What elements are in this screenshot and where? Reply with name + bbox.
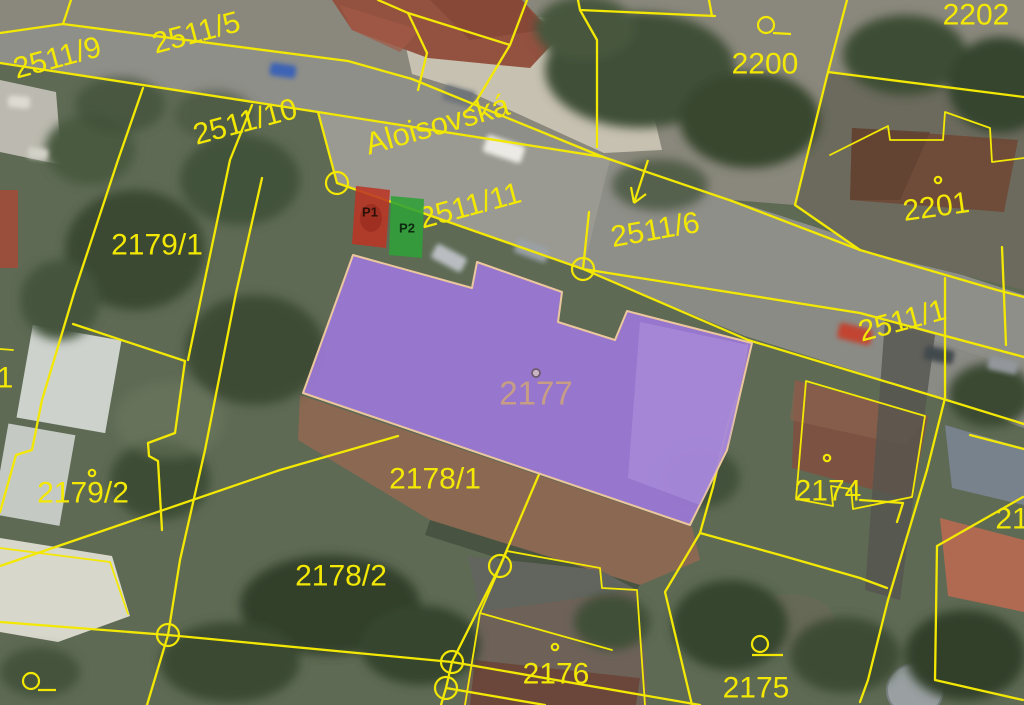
parcel-label-2176: 2176	[523, 658, 590, 691]
parcel-label-2202: 2202	[943, 0, 1010, 32]
parcel-label-2174: 2174	[795, 475, 862, 508]
parcel-label-2179-1: 2179/1	[111, 229, 203, 262]
parcel-label-2177: 2177	[499, 375, 572, 412]
cadastral-map: 2177 2511/9 2511/5 2511/10 Aloisovská 25…	[0, 0, 1024, 705]
edge-tick-left	[0, 349, 13, 350]
parcel-label-2178-1: 2178/1	[389, 463, 481, 496]
parcel-label-partial-right: 21	[995, 503, 1024, 536]
parcel-label-2179-2: 2179/2	[37, 477, 129, 510]
white-roof-building	[17, 325, 122, 433]
parcel-label-partial-left: 1	[0, 362, 13, 395]
parcel-label-2175: 2175	[723, 672, 790, 705]
marker-p1: P1	[352, 186, 390, 248]
parcel-label-2200: 2200	[732, 48, 799, 81]
marker-p2: P2	[389, 196, 424, 258]
marker-p1-label: P1	[362, 205, 378, 220]
marker-p2-label: P2	[399, 221, 415, 236]
map-canvas: 2177 2511/9 2511/5 2511/10 Aloisovská 25…	[0, 0, 1024, 705]
parcel-label-2178-2: 2178/2	[295, 560, 387, 593]
